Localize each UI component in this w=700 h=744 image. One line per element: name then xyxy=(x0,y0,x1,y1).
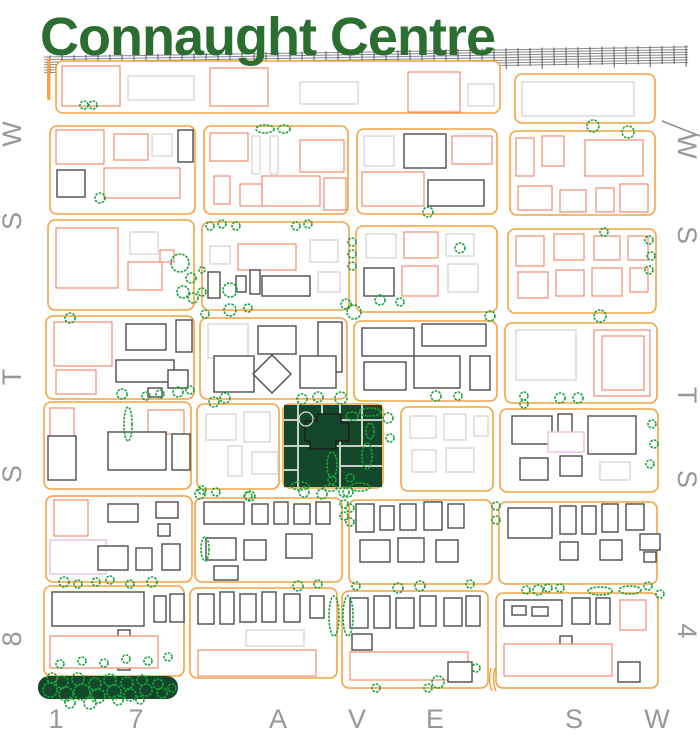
street-label-bottom: 1 xyxy=(48,704,63,734)
building-footprint xyxy=(56,370,96,394)
building-footprint xyxy=(602,504,618,532)
building-footprint xyxy=(592,268,622,296)
street-label-bottom: 7 xyxy=(128,704,143,734)
building-footprint xyxy=(424,502,442,530)
building-footprint xyxy=(644,552,656,562)
building-footprint xyxy=(244,540,266,560)
building-footprint xyxy=(136,548,152,570)
building-footprint xyxy=(208,272,220,298)
building-footprint xyxy=(594,236,620,260)
street-label-bottom: V xyxy=(348,704,366,734)
building-footprint xyxy=(210,246,230,264)
building-footprint xyxy=(404,134,446,168)
building-footprint xyxy=(206,414,236,440)
building-footprint xyxy=(600,540,622,560)
building-footprint xyxy=(402,266,438,296)
building-footprint xyxy=(362,172,424,206)
building-footprint xyxy=(448,662,472,682)
building-footprint xyxy=(444,598,462,626)
building-footprint xyxy=(444,414,466,440)
building-footprint xyxy=(56,228,118,288)
building-footprint xyxy=(532,607,548,616)
building-footprint xyxy=(620,184,648,212)
building-footprint xyxy=(240,594,256,622)
tree-marker xyxy=(383,413,393,423)
street-label-left: T xyxy=(0,369,27,386)
building-footprint xyxy=(585,140,643,176)
building-footprint xyxy=(640,534,660,550)
building-footprint xyxy=(258,326,296,354)
building-footprint xyxy=(220,592,234,624)
building-footprint xyxy=(108,432,166,470)
building-footprint xyxy=(522,82,634,116)
building-footprint xyxy=(518,186,552,210)
building-footprint xyxy=(252,504,268,524)
building-footprint xyxy=(404,232,438,258)
building-footprint xyxy=(400,504,416,530)
building-footprint xyxy=(246,630,304,646)
building-footprint xyxy=(560,190,586,212)
building-footprint xyxy=(626,504,644,530)
street-label-bottom: E xyxy=(426,704,444,734)
street-label-left: S xyxy=(0,212,27,230)
building-footprint xyxy=(50,636,158,668)
building-footprint xyxy=(428,180,484,206)
building-footprint xyxy=(204,502,244,524)
building-footprint xyxy=(396,598,414,628)
building-footprint xyxy=(274,502,288,524)
building-footprint xyxy=(228,446,242,476)
building-footprint xyxy=(294,504,310,524)
building-footprint xyxy=(284,594,300,622)
building-footprint xyxy=(512,606,526,615)
building-footprint xyxy=(54,500,88,536)
building-footprint xyxy=(364,362,406,390)
building-footprint xyxy=(198,650,316,676)
building-footprint xyxy=(116,360,174,382)
building-footprint xyxy=(128,262,162,290)
building-footprint xyxy=(54,322,112,366)
building-footprint xyxy=(57,170,85,197)
building-footprint xyxy=(412,450,436,472)
building-footprint xyxy=(582,506,596,534)
building-footprint xyxy=(104,168,180,198)
map-title: Connaught Centre xyxy=(40,6,495,68)
building-footprint xyxy=(318,272,340,292)
building-footprint xyxy=(516,138,534,176)
building-footprint xyxy=(130,232,158,254)
building-footprint xyxy=(452,136,492,164)
building-footprint xyxy=(210,133,248,161)
building-footprint xyxy=(516,236,544,266)
building-footprint xyxy=(414,356,460,388)
building-footprint xyxy=(128,76,194,100)
building-footprint xyxy=(170,594,184,622)
building-footprint xyxy=(470,356,490,390)
building-footprint xyxy=(214,566,238,580)
building-footprint xyxy=(62,66,120,106)
building-footprint xyxy=(446,448,474,472)
building-footprint xyxy=(554,234,584,260)
building-footprint xyxy=(152,134,172,156)
street-label-right: S xyxy=(672,470,700,488)
building-footprint xyxy=(208,324,248,358)
building-footprint xyxy=(310,596,324,618)
building-footprint xyxy=(560,456,582,476)
building-footprint xyxy=(410,416,436,438)
street-label-bottom: W xyxy=(644,704,670,734)
building-footprint xyxy=(520,458,548,480)
street-label-left: W xyxy=(0,121,27,147)
building-footprint xyxy=(300,82,358,104)
building-footprint xyxy=(214,356,254,392)
building-footprint xyxy=(262,176,320,206)
building-footprint xyxy=(178,130,193,162)
building-footprint xyxy=(286,534,312,558)
street-label-right: S xyxy=(672,226,700,244)
building-footprint xyxy=(436,540,458,562)
tree-marker xyxy=(65,698,75,708)
building-footprint xyxy=(356,504,374,532)
building-footprint xyxy=(252,136,260,174)
building-footprint xyxy=(518,272,548,298)
building-footprint xyxy=(618,662,640,682)
street-label-right: T xyxy=(672,387,700,404)
building-footprint xyxy=(596,188,614,212)
building-footprint xyxy=(560,506,576,534)
building-footprint xyxy=(360,540,390,562)
building-footprint xyxy=(600,462,630,480)
building-footprint xyxy=(250,270,260,294)
building-footprint xyxy=(252,452,278,474)
building-footprint xyxy=(364,268,394,296)
building-footprint xyxy=(630,268,648,292)
building-footprint xyxy=(240,184,262,206)
building-footprint xyxy=(516,330,576,380)
building-footprint xyxy=(310,240,338,262)
street-label-right: W xyxy=(672,133,700,159)
building-footprint xyxy=(448,264,478,292)
building-footprint xyxy=(48,436,76,480)
building-footprint xyxy=(270,136,278,174)
building-footprint xyxy=(504,644,612,676)
tree-marker xyxy=(544,584,552,592)
building-footprint xyxy=(162,544,180,570)
building-footprint xyxy=(366,234,396,258)
building-footprint xyxy=(262,276,310,296)
building-footprint xyxy=(52,592,144,626)
building-footprint xyxy=(466,596,480,626)
building-footprint xyxy=(474,416,488,436)
building-footprint xyxy=(398,538,424,562)
building-footprint xyxy=(324,178,346,210)
building-footprint xyxy=(560,542,578,560)
tree-marker xyxy=(201,310,209,318)
building-footprint xyxy=(114,134,148,160)
building-footprint xyxy=(352,634,372,650)
building-footprint xyxy=(168,370,188,388)
building-footprint xyxy=(422,324,486,346)
building-footprint xyxy=(316,502,330,524)
building-footprint xyxy=(156,502,178,518)
building-footprint xyxy=(364,136,394,166)
building-footprint xyxy=(176,320,192,352)
street-label-right: 4 xyxy=(672,623,700,638)
tree-marker xyxy=(347,305,361,319)
building-footprint xyxy=(408,72,460,112)
building-footprint xyxy=(602,336,644,390)
building-footprint xyxy=(154,596,166,622)
building-footprint xyxy=(262,592,276,622)
building-footprint xyxy=(238,244,296,270)
building-footprint xyxy=(556,270,584,296)
building-footprint xyxy=(588,416,636,454)
building-footprint xyxy=(620,600,646,630)
building-footprint xyxy=(126,324,166,350)
building-footprint xyxy=(236,276,246,292)
tree-marker xyxy=(656,590,664,598)
building-footprint xyxy=(572,598,590,624)
building-footprint xyxy=(596,598,610,624)
building-footprint xyxy=(172,434,190,470)
building-footprint xyxy=(380,506,394,530)
building-footprint xyxy=(548,432,584,452)
building-footprint xyxy=(468,84,494,106)
building-footprint xyxy=(244,412,270,442)
building-footprint xyxy=(512,416,552,444)
building-footprint xyxy=(210,68,268,106)
building-footprint xyxy=(542,136,564,166)
building-footprint xyxy=(158,524,170,536)
building-footprint xyxy=(420,596,436,626)
street-label-left: 8 xyxy=(0,631,27,646)
building-footprint xyxy=(108,504,138,522)
building-footprint xyxy=(198,594,214,624)
map-canvas: WSTS8WSTS417AVESW xyxy=(0,0,700,744)
building-footprint xyxy=(206,538,236,560)
building-footprint xyxy=(300,140,344,172)
street-label-left: S xyxy=(0,465,27,483)
building-footprint xyxy=(508,508,552,538)
tree-marker xyxy=(386,434,394,442)
orange-squiggle-mark xyxy=(490,668,492,691)
tree-marker xyxy=(556,584,564,592)
street-label-bottom: A xyxy=(269,704,287,734)
building-footprint xyxy=(98,546,128,570)
building-footprint xyxy=(448,504,464,528)
building-footprint xyxy=(300,356,336,388)
building-footprint xyxy=(362,328,414,356)
map-figure: Connaught Centre WSTS8WSTS417AVESW xyxy=(0,0,700,744)
building-footprint xyxy=(374,596,390,628)
building-footprint xyxy=(56,130,104,164)
street-label-bottom: S xyxy=(565,704,583,734)
building-footprint xyxy=(214,176,230,204)
building-footprint xyxy=(148,410,184,434)
